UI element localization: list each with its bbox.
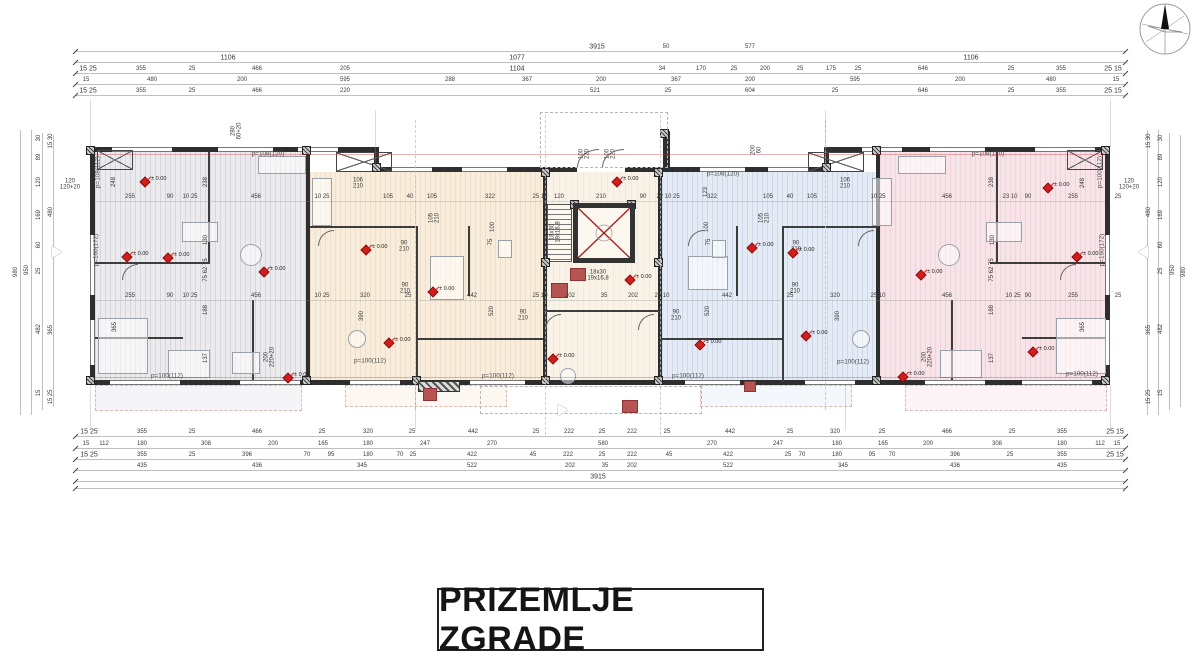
- dim-label: 521: [590, 88, 600, 94]
- dim-label: 200 60: [751, 145, 764, 155]
- dimension-tick: [1123, 486, 1129, 492]
- dim-label: 112: [1095, 441, 1105, 447]
- section-arrow-icon: [558, 404, 568, 416]
- dim-label: 202: [565, 463, 575, 469]
- dim-label: 25: [409, 429, 416, 435]
- dim-label: 112: [99, 441, 109, 447]
- level-marker-label: ± 0.00: [1054, 182, 1070, 188]
- dim-label: 950: [1170, 265, 1176, 275]
- dim-label: 202: [627, 463, 637, 469]
- dimension-line: [31, 130, 32, 415]
- dim-label: 320: [360, 293, 370, 299]
- dim-label: 90 210: [671, 310, 681, 323]
- dim-label: 15 30: [48, 133, 54, 148]
- dim-label: 180: [832, 452, 842, 458]
- partition: [416, 338, 543, 340]
- dim-label: 25: [1008, 66, 1015, 72]
- dimension-tick: [1123, 71, 1129, 77]
- dim-label: 90 210: [400, 283, 410, 296]
- dim-label: 90: [167, 293, 174, 299]
- dim-label: 480: [1146, 207, 1152, 217]
- dimension-tick: [1123, 468, 1129, 474]
- dim-label: 248: [111, 177, 117, 187]
- dim-label: 200: [745, 77, 755, 83]
- dim-label: 15 25: [79, 87, 97, 94]
- dim-label: 90: [1025, 194, 1032, 200]
- wardrobe: [898, 156, 946, 174]
- sofa: [182, 222, 218, 242]
- unit-zone-center-left: [310, 172, 543, 380]
- dimension-line: [75, 95, 1125, 96]
- dim-label: 436: [252, 463, 262, 469]
- dim-label: 70: [799, 452, 806, 458]
- dim-label: 280 60+20: [231, 123, 244, 140]
- dimension-tick: [1123, 479, 1129, 485]
- dim-label: 70: [889, 452, 896, 458]
- dim-label: 466: [942, 429, 952, 435]
- dim-label: 200: [923, 441, 933, 447]
- dim-label: 646: [918, 66, 928, 72]
- dim-label: 436: [950, 463, 960, 469]
- extension-line: [90, 100, 91, 147]
- dim-label: 365: [112, 322, 118, 332]
- dim-label: 90 210: [399, 241, 409, 254]
- dim-label: 100 220: [605, 149, 618, 159]
- level-marker-label: ± 0.00: [133, 251, 149, 257]
- kitchen-counter: [312, 178, 332, 226]
- floor-plan-sheet: 39155057711061077110615 2535525466205110…: [0, 0, 1200, 660]
- level-marker-label: ± 0.00: [270, 266, 286, 272]
- dim-label: 980: [13, 267, 19, 277]
- dim-label: 169: [1158, 210, 1164, 220]
- level-marker-label: ± 0.00: [1039, 346, 1055, 352]
- dim-label: 180: [1057, 441, 1067, 447]
- dim-label: 367: [671, 77, 681, 83]
- red-column: [570, 268, 586, 281]
- dim-label: 367: [522, 77, 532, 83]
- dim-label: 482: [1158, 324, 1164, 334]
- red-column: [744, 381, 756, 392]
- level-marker-label: ± 0.00: [1083, 251, 1099, 257]
- dim-label: 520: [489, 306, 495, 316]
- dim-label: 75: [706, 239, 712, 246]
- dim-label: 255: [125, 293, 135, 299]
- dimension-tick: [1123, 82, 1129, 88]
- partition: [996, 152, 998, 264]
- dim-label: 30: [36, 135, 42, 142]
- window: [90, 320, 95, 365]
- dim-label: 15 25: [80, 428, 98, 435]
- dimension-line: [95, 201, 1105, 202]
- window: [240, 380, 300, 385]
- terrace-outline: [480, 386, 702, 414]
- dim-label: 222: [627, 429, 637, 435]
- axis-line: [545, 115, 546, 435]
- dim-label: 3915: [589, 43, 605, 50]
- dim-label: 25: [731, 66, 738, 72]
- toilet: [712, 240, 726, 258]
- dim-label: 200 220+20: [264, 347, 277, 367]
- dim-label: 345: [357, 463, 367, 469]
- sheet-title: PRIZEMLJE ZGRADE: [439, 581, 762, 659]
- partition: [468, 226, 470, 296]
- north-compass-icon: [1136, 2, 1194, 65]
- dim-label: 95: [869, 452, 876, 458]
- dim-label: 15: [36, 390, 42, 397]
- dim-label: 365: [1080, 322, 1086, 332]
- partition: [416, 226, 418, 382]
- dim-label: 75: [488, 239, 494, 246]
- dim-label: 90: [1025, 293, 1032, 299]
- dim-label: 355: [136, 66, 146, 72]
- dimension-line: [75, 62, 1125, 63]
- dim-label: 1106: [220, 54, 235, 61]
- dim-label: p=100(112): [1098, 156, 1105, 188]
- dim-label: 950: [24, 265, 30, 275]
- dim-label: 75 62 75: [989, 258, 995, 281]
- dim-label: 25 10: [532, 194, 547, 200]
- dim-label: 480: [48, 207, 54, 217]
- dim-label: 200 220+20: [922, 347, 935, 367]
- dim-label: 355: [1056, 66, 1066, 72]
- dim-label: 25: [189, 66, 196, 72]
- dim-label: 40: [407, 194, 414, 200]
- dim-label: 25: [1007, 452, 1014, 458]
- dim-label: 25: [785, 452, 792, 458]
- dim-label: 466: [252, 429, 262, 435]
- dim-label: 45: [530, 452, 537, 458]
- dimension-line: [75, 470, 1125, 471]
- dim-label: 105: [807, 194, 817, 200]
- dim-label: 202: [565, 293, 575, 299]
- dim-label: 200: [760, 66, 770, 72]
- dim-label: 442: [467, 293, 477, 299]
- dim-label: 396: [950, 452, 960, 458]
- dim-label: 466: [252, 66, 262, 72]
- level-marker-label: ± 0.00: [151, 176, 167, 182]
- dim-label: 15: [83, 77, 90, 83]
- extension-line: [415, 385, 416, 430]
- dim-label: 247: [420, 441, 430, 447]
- dim-label: p=100(112): [837, 360, 869, 367]
- dimension-line: [95, 300, 1105, 301]
- dim-label: 646: [918, 88, 928, 94]
- dim-label: 90 210: [518, 310, 528, 323]
- level-marker-label: ± 0.00: [758, 242, 774, 248]
- dim-label: 355: [1057, 452, 1067, 458]
- dim-label: 25: [36, 268, 42, 275]
- dim-label: 255: [125, 194, 135, 200]
- dim-label: 522: [467, 463, 477, 469]
- dim-label: 466: [252, 88, 262, 94]
- dim-label: 25: [189, 452, 196, 458]
- dim-label: 15 25: [1146, 389, 1152, 404]
- dim-label: 35: [601, 293, 608, 299]
- dim-label: 106 210: [840, 178, 850, 191]
- dimension-line: [75, 51, 1125, 52]
- dim-label: 442: [468, 429, 478, 435]
- round-table: [560, 368, 576, 384]
- dim-label: 10 25: [314, 194, 329, 200]
- dim-label: 25 10: [870, 293, 885, 299]
- dim-label: 25: [879, 429, 886, 435]
- dim-label: 522: [723, 463, 733, 469]
- dim-label: 25 10: [654, 293, 669, 299]
- dim-label: 137: [203, 353, 209, 363]
- level-marker-label: ± 0.00: [799, 247, 815, 253]
- dim-label: 270: [707, 441, 717, 447]
- dim-label: 25: [855, 66, 862, 72]
- dim-label: 980: [1181, 267, 1187, 277]
- dim-label: 200: [237, 77, 247, 83]
- dim-label: 15 30: [1146, 133, 1152, 148]
- dim-label: 10 25: [870, 194, 885, 200]
- terrace: [905, 385, 1107, 411]
- dim-label: 25 10: [532, 293, 547, 299]
- extension-line: [825, 110, 826, 167]
- dim-label: 15: [83, 441, 90, 447]
- level-marker-label: ± 0.00: [623, 176, 639, 182]
- dim-label: 442: [722, 293, 732, 299]
- dim-label: p=100(112): [354, 359, 386, 366]
- dim-label: 137: [989, 353, 995, 363]
- dim-label: 595: [340, 77, 350, 83]
- level-marker-label: ± 0.00: [372, 244, 388, 250]
- dim-label: 188: [203, 305, 209, 315]
- dim-label: 25: [319, 429, 326, 435]
- dim-label: 25: [189, 88, 196, 94]
- section-arrow-icon: [52, 246, 62, 258]
- dim-label: 435: [137, 463, 147, 469]
- dim-label: 365: [48, 325, 54, 335]
- dim-label: 15 25: [79, 65, 97, 72]
- dim-label: p=100(112): [672, 374, 704, 381]
- dim-label: 422: [723, 452, 733, 458]
- closet: [336, 152, 392, 172]
- dim-label: 220: [340, 88, 350, 94]
- extension-line: [845, 385, 846, 430]
- dim-label: p=160(172): [1100, 234, 1107, 266]
- dim-label: 120: [36, 177, 42, 187]
- column: [372, 163, 381, 172]
- dim-label: 200: [596, 77, 606, 83]
- dim-label: 105: [427, 194, 437, 200]
- level-marker-label: ± 0.00: [174, 252, 190, 258]
- round-table: [938, 244, 960, 266]
- dim-label: 456: [251, 293, 261, 299]
- dim-label: 15 25: [80, 451, 98, 458]
- bed: [98, 318, 148, 374]
- dim-label: 15: [1114, 441, 1121, 447]
- party-wall: [306, 152, 310, 380]
- dim-label: 60: [36, 242, 42, 249]
- dim-label: 308: [201, 441, 211, 447]
- dim-label: 520: [705, 306, 711, 316]
- dim-label: 480: [147, 77, 157, 83]
- dim-label: 105 210: [429, 213, 442, 223]
- dimension-line: [75, 488, 1125, 489]
- dim-label: 120: [554, 194, 564, 200]
- dim-label: 70: [397, 452, 404, 458]
- dim-label: 25: [797, 66, 804, 72]
- level-marker-label: ± 0.00: [927, 269, 943, 275]
- dim-label: 90 210: [790, 283, 800, 296]
- red-column: [423, 388, 437, 401]
- dimension-line: [75, 436, 1125, 437]
- dim-label: 456: [942, 194, 952, 200]
- dim-label: p=160(172): [94, 234, 101, 266]
- dimension-line: [20, 130, 21, 415]
- dim-label: 25: [1008, 88, 1015, 94]
- dimension-tick: [1123, 93, 1129, 99]
- partition: [990, 262, 1105, 264]
- dim-label: 18x30 19x16,8: [550, 221, 563, 242]
- dim-label: 75 62 75: [203, 258, 209, 281]
- dim-label: 170: [696, 66, 706, 72]
- partition: [782, 226, 784, 382]
- dim-label: 10 25: [1005, 293, 1020, 299]
- dim-label: 18x30 19x16,8: [587, 270, 608, 283]
- dim-label: 25 15: [1104, 87, 1122, 94]
- dim-label: 10 25: [182, 293, 197, 299]
- insulation-line: [95, 377, 1105, 378]
- dim-label: 255: [1068, 194, 1078, 200]
- dim-label: 288: [445, 77, 455, 83]
- dim-label: 105 210: [759, 213, 772, 223]
- dim-label: 25: [1158, 268, 1164, 275]
- dim-label: 3915: [590, 473, 606, 480]
- dim-label: 482: [36, 324, 42, 334]
- dim-label: 90: [167, 194, 174, 200]
- dimension-tick: [1123, 60, 1129, 66]
- dim-label: 175: [826, 66, 836, 72]
- dim-label: p=108(120): [252, 152, 284, 159]
- dim-label: 120 120+20: [60, 179, 80, 192]
- partition: [95, 262, 210, 264]
- dimension-line: [75, 84, 1125, 85]
- dim-label: 222: [563, 452, 573, 458]
- dim-label: 123: [703, 187, 709, 197]
- dim-label: 322: [485, 194, 495, 200]
- dim-label: 200: [955, 77, 965, 83]
- dim-label: 1104: [509, 65, 524, 72]
- dim-label: 100 220: [579, 149, 592, 159]
- dim-label: 180: [363, 452, 373, 458]
- insulation-line: [95, 154, 1105, 155]
- closet: [97, 150, 133, 170]
- dim-label: 355: [137, 429, 147, 435]
- dim-label: 165: [318, 441, 328, 447]
- dim-label: 25: [599, 429, 606, 435]
- dim-label: 238: [203, 177, 209, 187]
- dim-label: 165: [878, 441, 888, 447]
- toilet: [498, 240, 512, 258]
- dim-label: 15: [1158, 390, 1164, 397]
- window: [925, 380, 985, 385]
- dim-label: 580: [598, 441, 608, 447]
- dim-label: p=108(120): [972, 152, 1004, 159]
- dim-label: 577: [745, 44, 755, 50]
- dim-label: 25: [832, 88, 839, 94]
- dim-label: 10 25: [314, 293, 329, 299]
- extension-line: [90, 385, 91, 430]
- dim-label: 106 210: [353, 178, 363, 191]
- dim-label: 25: [599, 452, 606, 458]
- dim-label: 355: [137, 452, 147, 458]
- dim-label: 390: [359, 311, 365, 321]
- dimension-line: [1147, 130, 1148, 415]
- dim-label: 30: [1158, 135, 1164, 142]
- dim-label: 180: [137, 441, 147, 447]
- partition: [543, 310, 662, 312]
- table: [688, 256, 728, 290]
- window: [1022, 380, 1092, 385]
- dim-label: 205: [340, 66, 350, 72]
- dim-label: 45: [666, 452, 673, 458]
- dim-label: 25: [1115, 194, 1122, 200]
- window: [350, 380, 400, 385]
- dim-label: 480: [1046, 77, 1056, 83]
- window: [862, 147, 902, 152]
- dim-label: 25: [533, 429, 540, 435]
- dim-label: 456: [251, 194, 261, 200]
- dim-label: 202: [628, 293, 638, 299]
- round-table: [852, 330, 870, 348]
- level-marker-label: ± 0.00: [439, 286, 455, 292]
- dim-label: 320: [830, 429, 840, 435]
- dim-label: 180: [363, 441, 373, 447]
- dim-label: 90: [640, 194, 647, 200]
- dim-label: 308: [992, 441, 1002, 447]
- dim-label: 25: [410, 452, 417, 458]
- level-marker-label: ± 0.00: [559, 353, 575, 359]
- column: [822, 163, 831, 172]
- dim-label: 10 25: [182, 194, 197, 200]
- dim-label: 15: [1113, 77, 1120, 83]
- window: [392, 167, 432, 172]
- dim-label: 25 15: [1104, 65, 1122, 72]
- column: [86, 146, 95, 155]
- dim-label: 25: [664, 429, 671, 435]
- dim-label: 100: [704, 222, 710, 232]
- dimension-tick: [1123, 49, 1129, 55]
- column: [654, 258, 663, 267]
- partition: [782, 226, 878, 228]
- dim-label: 320: [363, 429, 373, 435]
- section-arrow-icon: [1138, 246, 1148, 258]
- table: [232, 352, 260, 374]
- dim-label: 105: [383, 194, 393, 200]
- dim-label: p=108(112): [96, 156, 103, 188]
- round-table: [348, 330, 366, 348]
- extension-line: [375, 110, 376, 167]
- kitchen-counter: [872, 178, 892, 226]
- dim-label: 40: [787, 194, 794, 200]
- level-marker-label: ± 0.00: [706, 339, 722, 345]
- dim-label: 130: [203, 235, 209, 245]
- dim-label: p=108(120): [707, 172, 739, 179]
- dim-label: 210: [596, 194, 606, 200]
- dim-label: 35: [602, 463, 609, 469]
- title-block: PRIZEMLJE ZGRADE: [437, 588, 764, 651]
- round-table: [240, 244, 262, 266]
- dim-label: 222: [564, 429, 574, 435]
- table: [940, 350, 982, 378]
- dim-label: 15 25: [48, 389, 54, 404]
- level-marker-label: ± 0.00: [294, 372, 310, 378]
- dim-label: 238: [989, 177, 995, 187]
- window: [685, 380, 740, 385]
